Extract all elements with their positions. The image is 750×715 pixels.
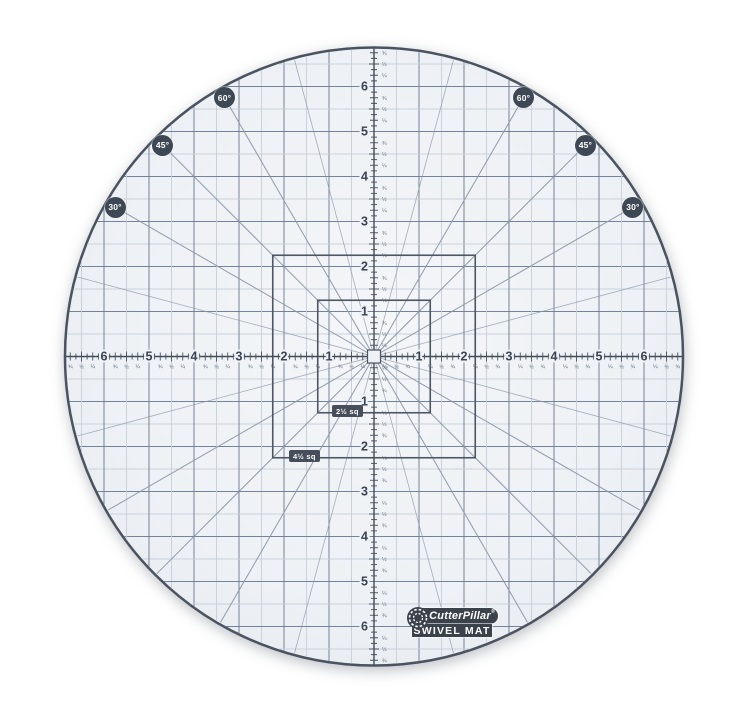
center-square (368, 350, 381, 363)
svg-text:¼: ¼ (518, 365, 523, 371)
svg-text:¾: ¾ (382, 51, 387, 57)
svg-text:½: ½ (79, 364, 84, 371)
angle-badge-30: 30° (105, 197, 126, 218)
svg-text:½: ½ (382, 151, 387, 158)
svg-text:¼: ¼ (382, 546, 387, 552)
angle-badge-60: 60° (513, 87, 534, 108)
svg-text:½: ½ (619, 364, 624, 371)
svg-text:¼: ¼ (382, 208, 387, 214)
svg-text:½: ½ (382, 331, 387, 338)
svg-text:½: ½ (382, 241, 387, 248)
svg-text:½: ½ (382, 61, 387, 68)
svg-text:½: ½ (259, 364, 264, 371)
svg-text:½: ½ (484, 364, 489, 371)
svg-text:½: ½ (439, 364, 444, 371)
svg-text:¼: ¼ (382, 118, 387, 124)
svg-text:½: ½ (304, 364, 309, 371)
cutterpillar-logo: CutterPillar ® SWIVEL MAT (404, 601, 504, 641)
svg-text:¼: ¼ (180, 365, 185, 371)
svg-text:½: ½ (382, 646, 387, 653)
svg-text:½: ½ (382, 466, 387, 473)
svg-text:4: 4 (551, 350, 558, 364)
svg-text:5: 5 (146, 350, 153, 364)
svg-text:4: 4 (191, 350, 198, 364)
svg-text:¼: ¼ (563, 365, 568, 371)
svg-text:½: ½ (382, 556, 387, 563)
svg-text:6: 6 (101, 350, 108, 364)
svg-text:½: ½ (394, 364, 399, 371)
svg-text:¾: ¾ (382, 658, 387, 664)
svg-text:¾: ¾ (450, 365, 455, 371)
svg-text:½: ½ (169, 364, 174, 371)
svg-text:¾: ¾ (675, 365, 680, 371)
outer-square-label: 4½ sq (289, 450, 320, 462)
svg-text:6: 6 (641, 350, 648, 364)
svg-text:2: 2 (361, 260, 368, 274)
svg-text:3: 3 (236, 350, 243, 364)
angle-badge-30: 30° (622, 197, 643, 218)
angle-badge-60: 60° (214, 87, 235, 108)
svg-text:¼: ¼ (382, 591, 387, 597)
svg-text:3: 3 (506, 350, 513, 364)
svg-text:¾: ¾ (585, 365, 590, 371)
svg-text:½: ½ (349, 364, 354, 371)
svg-text:¾: ¾ (248, 365, 253, 371)
svg-text:¾: ¾ (630, 365, 635, 371)
svg-text:¾: ¾ (382, 96, 387, 102)
svg-text:¾: ¾ (382, 568, 387, 574)
svg-text:½: ½ (214, 364, 219, 371)
svg-text:1: 1 (326, 350, 333, 364)
svg-text:¼: ¼ (653, 365, 658, 371)
caterpillar-icon (405, 605, 431, 631)
svg-text:¾: ¾ (382, 231, 387, 237)
angle-badge-45: 45° (575, 135, 596, 156)
svg-text:¼: ¼ (315, 365, 320, 371)
svg-text:2: 2 (461, 350, 468, 364)
svg-text:2: 2 (361, 440, 368, 454)
svg-text:4: 4 (361, 170, 368, 184)
svg-text:¾: ¾ (382, 321, 387, 327)
svg-text:5: 5 (361, 575, 368, 589)
svg-text:¾: ¾ (382, 613, 387, 619)
product-photo-stage: ¼¼¼¼½½½½¾¾¾¾¼¼¼¼½½½½¾¾¾¾¼¼¼¼½½½½¾¾¾¾¼¼¼¼… (0, 0, 750, 715)
svg-text:¼: ¼ (382, 298, 387, 304)
svg-text:¼: ¼ (382, 343, 387, 349)
svg-text:¼: ¼ (473, 365, 478, 371)
svg-text:3: 3 (361, 215, 368, 229)
svg-text:¼: ¼ (90, 365, 95, 371)
svg-text:¼: ¼ (382, 253, 387, 259)
svg-text:¼: ¼ (382, 366, 387, 372)
svg-text:¼: ¼ (360, 365, 365, 371)
svg-text:¾: ¾ (495, 365, 500, 371)
svg-text:½: ½ (382, 511, 387, 518)
svg-text:¼: ¼ (428, 365, 433, 371)
svg-text:¾: ¾ (382, 141, 387, 147)
svg-text:½: ½ (382, 376, 387, 383)
svg-text:¾: ¾ (382, 388, 387, 394)
svg-text:5: 5 (596, 350, 603, 364)
svg-text:¼: ¼ (608, 365, 613, 371)
svg-text:5: 5 (361, 125, 368, 139)
svg-text:¾: ¾ (405, 365, 410, 371)
svg-text:½: ½ (382, 196, 387, 203)
svg-text:¼: ¼ (382, 501, 387, 507)
svg-text:¾: ¾ (540, 365, 545, 371)
svg-text:¾: ¾ (338, 365, 343, 371)
svg-text:¼: ¼ (225, 365, 230, 371)
svg-text:¾: ¾ (68, 365, 73, 371)
brand-name: CutterPillar (429, 610, 491, 622)
svg-text:¾: ¾ (382, 276, 387, 282)
swivel-mat: ¼¼¼¼½½½½¾¾¾¾¼¼¼¼½½½½¾¾¾¾¼¼¼¼½½½½¾¾¾¾¼¼¼¼… (0, 0, 750, 715)
angle-badge-45: 45° (152, 135, 173, 156)
svg-text:½: ½ (382, 421, 387, 428)
svg-text:½: ½ (529, 364, 534, 371)
svg-text:¼: ¼ (382, 411, 387, 417)
svg-text:½: ½ (382, 106, 387, 113)
inner-square-label: 2½ sq (332, 405, 363, 417)
svg-text:¾: ¾ (382, 186, 387, 192)
registered-mark: ® (491, 609, 495, 615)
svg-text:¾: ¾ (158, 365, 163, 371)
svg-text:¼: ¼ (382, 163, 387, 169)
svg-text:¼: ¼ (382, 456, 387, 462)
svg-text:1: 1 (416, 350, 423, 364)
svg-text:1: 1 (361, 305, 368, 319)
svg-text:½: ½ (664, 364, 669, 371)
svg-text:¾: ¾ (113, 365, 118, 371)
svg-text:½: ½ (124, 364, 129, 371)
svg-text:½: ½ (574, 364, 579, 371)
svg-text:¾: ¾ (382, 523, 387, 529)
svg-text:¾: ¾ (293, 365, 298, 371)
svg-text:¾: ¾ (382, 433, 387, 439)
svg-text:½: ½ (382, 601, 387, 608)
svg-text:¾: ¾ (382, 478, 387, 484)
svg-text:¾: ¾ (203, 365, 208, 371)
svg-text:2: 2 (281, 350, 288, 364)
svg-text:3: 3 (361, 485, 368, 499)
svg-text:¼: ¼ (135, 365, 140, 371)
svg-text:½: ½ (382, 286, 387, 293)
svg-text:6: 6 (361, 620, 368, 634)
svg-text:¼: ¼ (270, 365, 275, 371)
svg-text:4: 4 (361, 530, 368, 544)
svg-text:6: 6 (361, 80, 368, 94)
svg-text:¼: ¼ (382, 73, 387, 79)
svg-text:¼: ¼ (382, 636, 387, 642)
